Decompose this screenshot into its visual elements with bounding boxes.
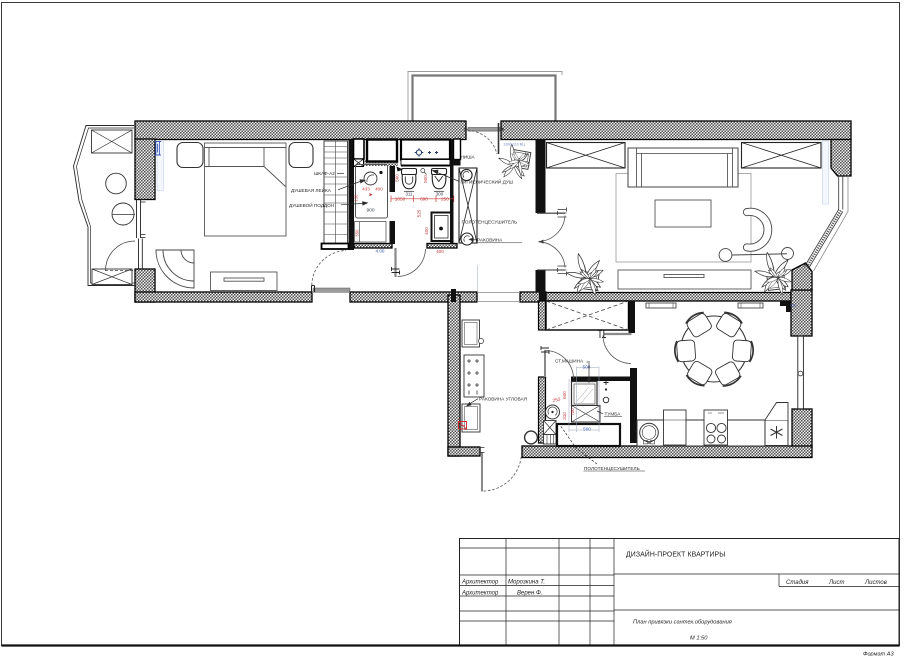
- svg-text:900: 900: [366, 208, 374, 214]
- svg-text:310: 310: [562, 412, 567, 420]
- svg-text:700: 700: [570, 408, 575, 416]
- svg-text:СТ.МАШИНА: СТ.МАШИНА: [555, 359, 584, 364]
- svg-text:Формат А3: Формат А3: [863, 652, 894, 656]
- svg-text:4.00: 4.00: [376, 249, 385, 254]
- svg-text:Лист: Лист: [828, 580, 844, 586]
- svg-text:ШКАФ-А2: ШКАФ-А2: [314, 171, 335, 176]
- svg-text:500: 500: [583, 427, 591, 432]
- svg-text:400: 400: [436, 249, 444, 254]
- svg-text:560: 560: [395, 174, 400, 182]
- svg-text:400: 400: [375, 187, 383, 192]
- svg-text:433: 433: [362, 187, 370, 192]
- svg-text:Листов: Листов: [864, 580, 887, 586]
- svg-text:500: 500: [423, 175, 428, 183]
- svg-text:ПОЛОТЕНЦЕСУШИТЕЛЬ: ПОЛОТЕНЦЕСУШИТЕЛЬ: [584, 466, 640, 471]
- svg-text:550: 550: [355, 229, 360, 237]
- svg-text:ТУМБА: ТУМБА: [605, 412, 622, 417]
- svg-text:Архитектор: Архитектор: [461, 580, 499, 586]
- svg-text:400: 400: [424, 227, 429, 235]
- svg-text:ДИЗАЙН-ПРОЕКТ КВАРТИРЫ: ДИЗАЙН-ПРОЕКТ КВАРТИРЫ: [626, 550, 725, 559]
- svg-text:РАКОВИНА УГЛОВАЯ: РАКОВИНА УГЛОВАЯ: [479, 397, 527, 402]
- svg-text:Верен Ф.: Верен Ф.: [517, 591, 542, 597]
- svg-text:500: 500: [583, 365, 591, 370]
- svg-text:ДУШЕВАЯ ЛЕЙКА: ДУШЕВАЯ ЛЕЙКА: [291, 186, 332, 193]
- svg-text:600: 600: [562, 391, 567, 399]
- svg-text:План привязки сантех.оборудова: План привязки сантех.оборудования: [633, 620, 732, 626]
- svg-text:ДУШЕВОЙ ПОДДОН: ДУШЕВОЙ ПОДДОН: [289, 201, 334, 208]
- svg-text:ПОЛОТЕНЦЕСУШИТЕЛЬ: ПОЛОТЕНЦЕСУШИТЕЛЬ: [462, 220, 518, 225]
- svg-text:525: 525: [417, 209, 422, 217]
- svg-text:Архитектор: Архитектор: [461, 591, 499, 597]
- svg-text:311: 311: [406, 191, 414, 196]
- svg-text:Морозкина Т.: Морозкина Т.: [508, 580, 545, 586]
- svg-text:Стадия: Стадия: [786, 580, 809, 586]
- svg-text:РАКОВИНА: РАКОВИНА: [477, 238, 503, 243]
- svg-text:1300х110 ВЦ: 1300х110 ВЦ: [503, 143, 525, 147]
- svg-text:НИША: НИША: [461, 155, 476, 160]
- svg-text:300: 300: [436, 191, 444, 196]
- svg-text:М 1:50: М 1:50: [690, 636, 708, 642]
- svg-text:СБ: СБ: [790, 304, 796, 308]
- svg-text:ГИГИЕНИЧЕСКИЙ ДУШ: ГИГИЕНИЧЕСКИЙ ДУШ: [461, 178, 514, 185]
- svg-text:150: 150: [354, 194, 359, 202]
